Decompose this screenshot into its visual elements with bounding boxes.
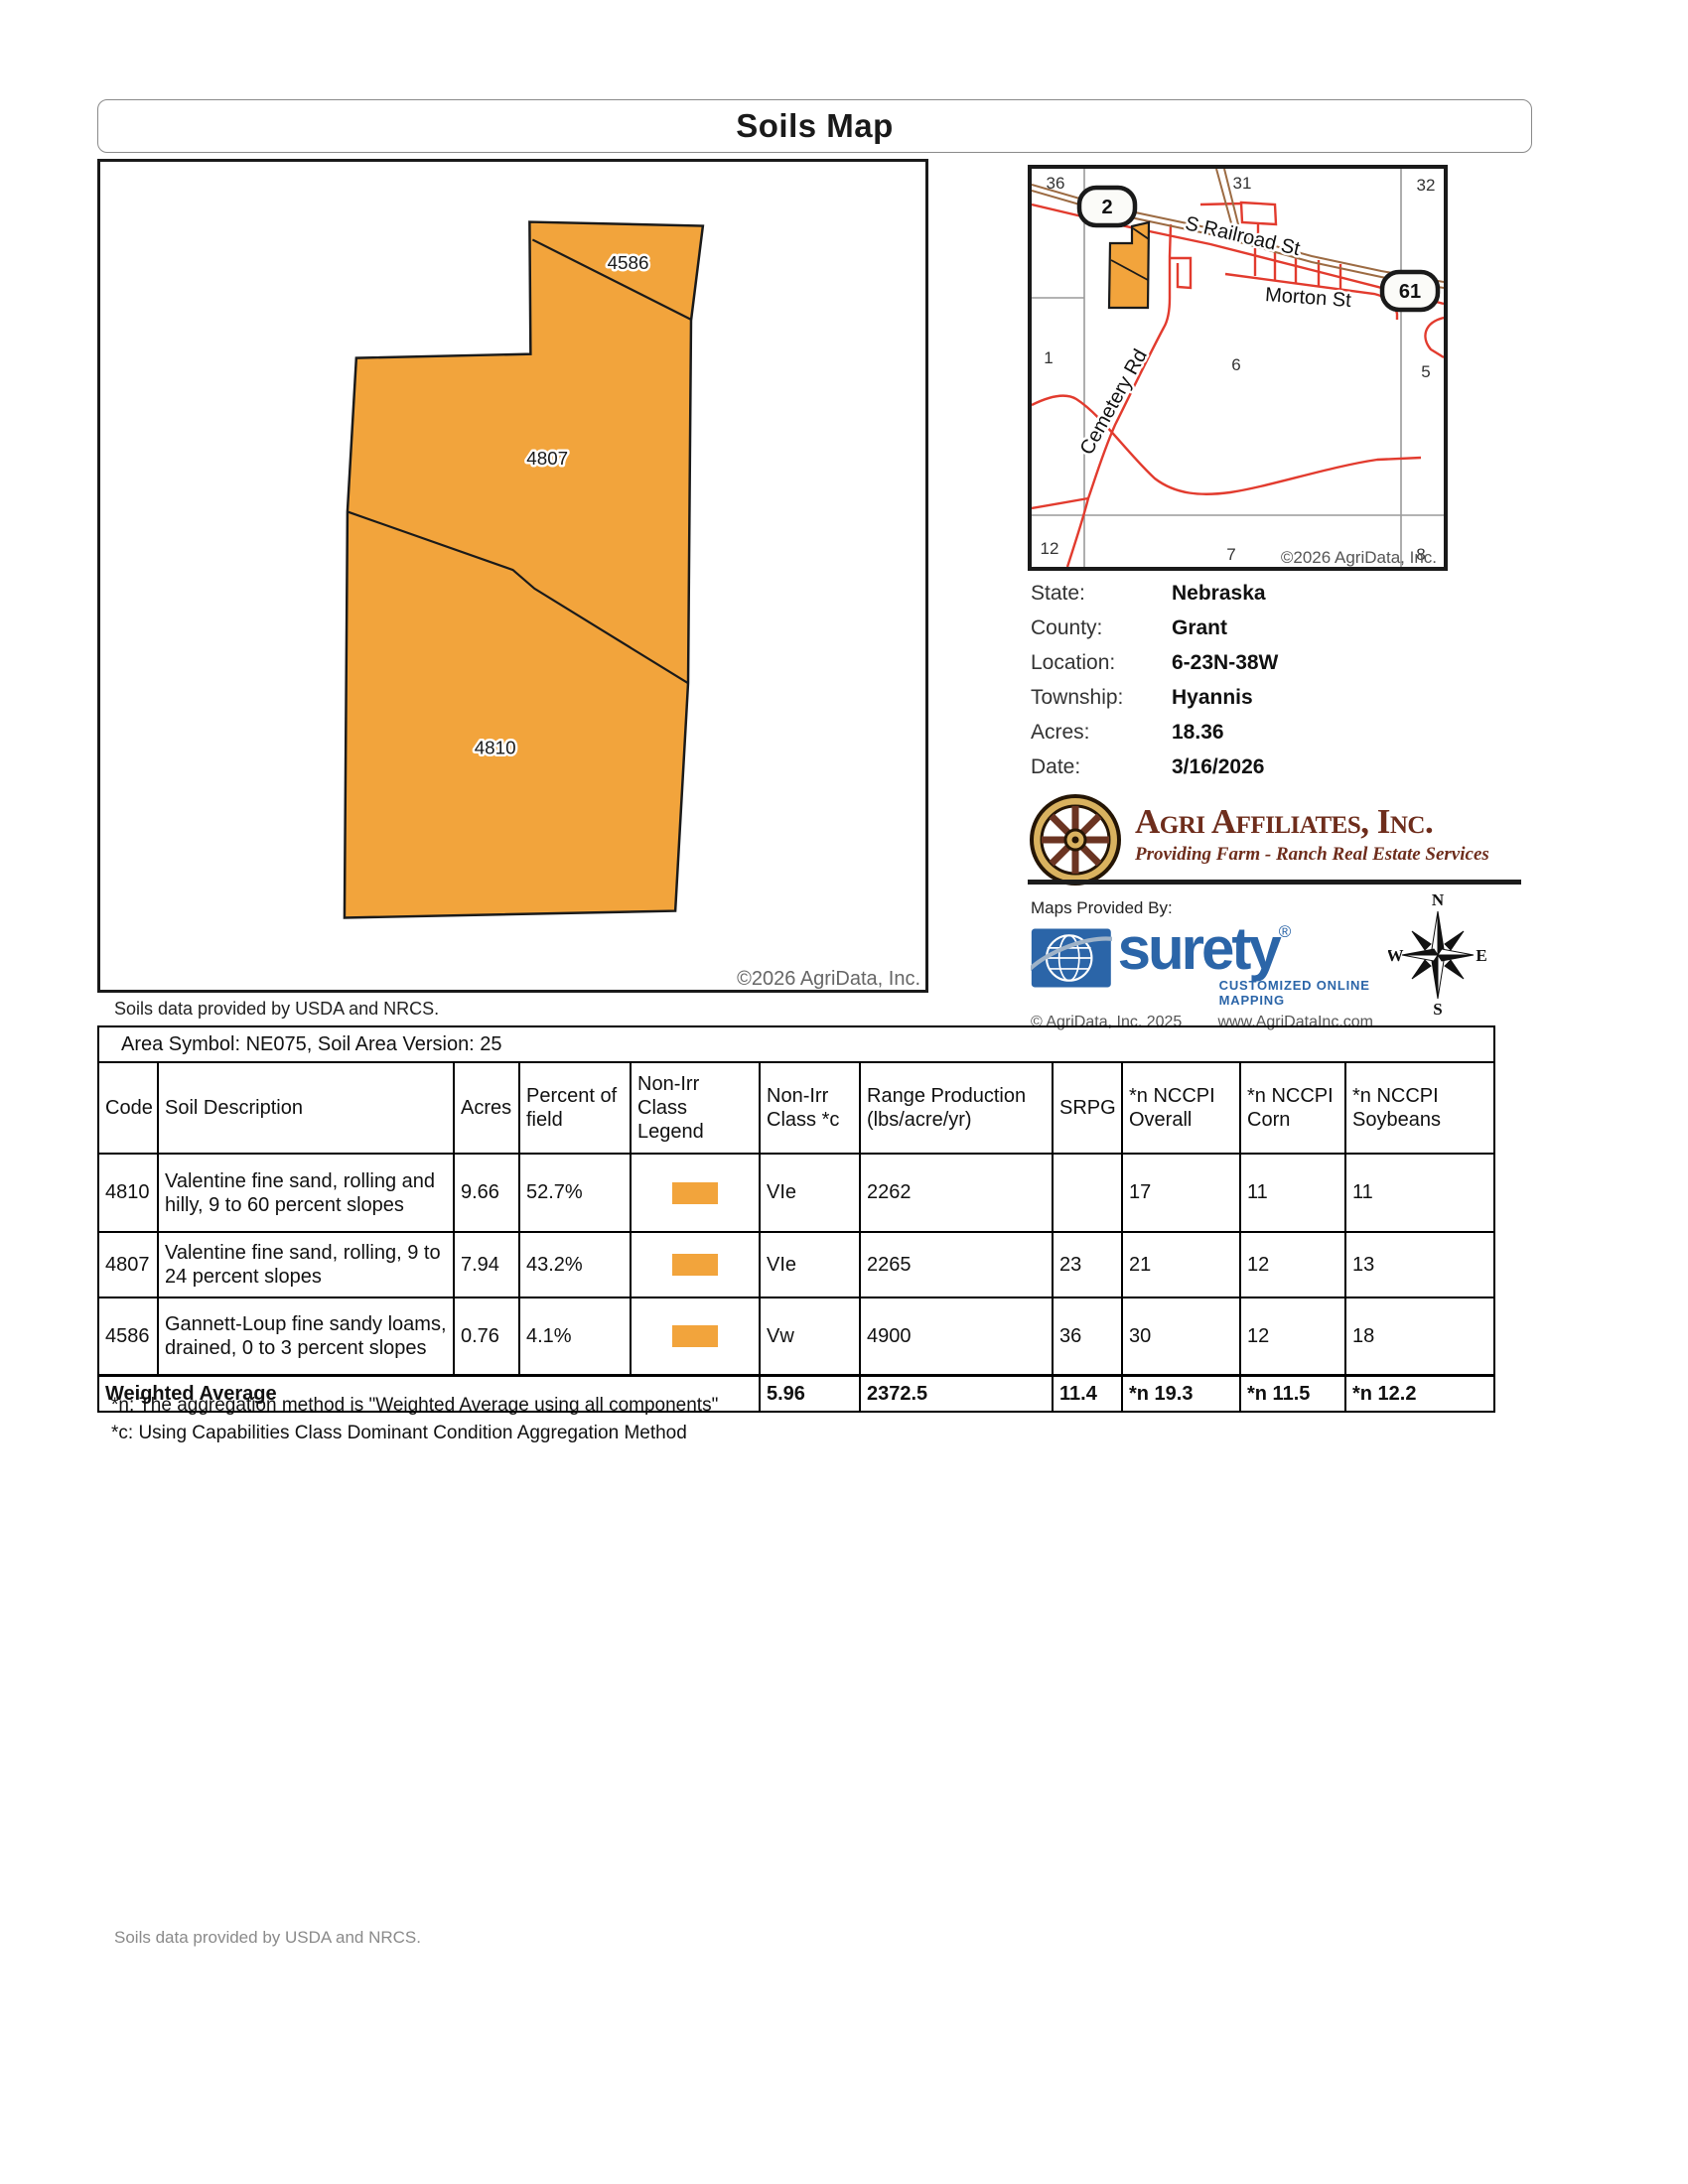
info-value-location: 6-23N-38W — [1172, 650, 1278, 676]
info-value-state: Nebraska — [1172, 581, 1266, 607]
cell-class: Vw — [760, 1297, 860, 1376]
cell-code: 4586 — [98, 1297, 158, 1376]
surety-subtitle: CUSTOMIZED ONLINE MAPPING — [1219, 978, 1388, 1008]
cell-overall: 21 — [1122, 1232, 1240, 1297]
agri-affiliates-logo: Agri Affiliates, Inc. Providing Farm - R… — [1028, 792, 1521, 888]
soils-source-note-bottom: Soils data provided by USDA and NRCS. — [114, 1928, 421, 1948]
cell-acres: 0.76 — [454, 1297, 519, 1376]
svg-text:36: 36 — [1047, 174, 1065, 193]
table-row: 4586 Gannett-Loup fine sandy loams, drai… — [98, 1297, 1494, 1376]
locator-parcel — [1109, 222, 1149, 308]
cell-class: VIe — [760, 1232, 860, 1297]
cell-soybeans: 13 — [1345, 1232, 1494, 1297]
locator-map-svg: 2 61 36 31 32 1 6 5 12 7 8 S Railroad St — [1032, 169, 1444, 567]
logo-divider-rule — [1028, 880, 1521, 885]
soil-map-svg: 4586 4807 4810 — [100, 162, 925, 990]
col-header-legend: Non-Irr Class Legend — [631, 1062, 760, 1154]
cell-percent: 52.7% — [519, 1154, 631, 1232]
cell-corn: 11 — [1240, 1154, 1345, 1232]
cell-soybeans: 11 — [1345, 1154, 1494, 1232]
locator-copyright: ©2026 AgriData, Inc. — [1281, 548, 1437, 567]
cell-acres: 9.66 — [454, 1154, 519, 1232]
wagon-wheel-icon — [1028, 792, 1123, 887]
svg-text:E: E — [1476, 946, 1486, 965]
registered-mark: ® — [1279, 922, 1292, 941]
cell-srpg: 36 — [1053, 1297, 1122, 1376]
weighted-range: 2372.5 — [860, 1376, 1053, 1413]
cell-soybeans: 18 — [1345, 1297, 1494, 1376]
col-header-acres: Acres — [454, 1062, 519, 1154]
info-label: State: — [1031, 581, 1172, 607]
col-header-soybeans: *n NCCPI Soybeans — [1345, 1062, 1494, 1154]
col-header-range: Range Production (lbs/acre/yr) — [860, 1062, 1053, 1154]
footnotes: *n: The aggregation method is "Weighted … — [111, 1392, 718, 1447]
soils-source-note-top: Soils data provided by USDA and NRCS. — [114, 999, 439, 1020]
highway-shield-61: 61 — [1382, 272, 1438, 310]
parcel-info-block: State:Nebraska County:Grant Location:6-2… — [1031, 581, 1448, 789]
col-header-code: Code — [98, 1062, 158, 1154]
cell-description: Gannett-Loup fine sandy loams, drained, … — [158, 1297, 454, 1376]
svg-text:6: 6 — [1231, 355, 1240, 374]
cell-srpg — [1053, 1154, 1122, 1232]
soil-label-4810: 4810 — [475, 738, 516, 758]
roads — [1032, 203, 1444, 567]
compass-rose-icon: N S W E — [1388, 891, 1487, 1022]
area-symbol-header: Area Symbol: NE075, Soil Area Version: 2… — [98, 1026, 1494, 1062]
surety-wordmark: surety — [1118, 915, 1279, 982]
info-value-acres: 18.36 — [1172, 720, 1224, 746]
cell-range: 4900 — [860, 1297, 1053, 1376]
weighted-corn: *n 11.5 — [1240, 1376, 1345, 1413]
svg-text:7: 7 — [1226, 545, 1235, 564]
weighted-soybeans: *n 12.2 — [1345, 1376, 1494, 1413]
legend-swatch — [672, 1254, 718, 1276]
cell-percent: 43.2% — [519, 1232, 631, 1297]
cell-description: Valentine fine sand, rolling, 9 to 24 pe… — [158, 1232, 454, 1297]
legend-swatch — [672, 1325, 718, 1347]
weighted-srpg: 11.4 — [1053, 1376, 1122, 1413]
agri-affiliates-name: Agri Affiliates, Inc. — [1135, 804, 1521, 840]
agri-affiliates-tagline: Providing Farm - Ranch Real Estate Servi… — [1135, 844, 1521, 866]
svg-text:Morton St: Morton St — [1264, 284, 1351, 312]
footnote-c: *c: Using Capabilities Class Dominant Co… — [111, 1420, 718, 1447]
col-header-overall: *n NCCPI Overall — [1122, 1062, 1240, 1154]
soil-label-4807: 4807 — [526, 448, 568, 469]
info-value-date: 3/16/2026 — [1172, 754, 1264, 780]
info-label: County: — [1031, 615, 1172, 641]
cell-code: 4807 — [98, 1232, 158, 1297]
info-label: Date: — [1031, 754, 1172, 780]
cell-range: 2265 — [860, 1232, 1053, 1297]
page-title: Soils Map — [736, 107, 894, 145]
svg-text:5: 5 — [1421, 362, 1430, 381]
soils-map-report-page: Soils Map 4586 4807 4810 ©2026 AgriData,… — [0, 0, 1688, 2184]
cell-description: Valentine fine sand, rolling and hilly, … — [158, 1154, 454, 1232]
surety-globe-icon — [1031, 922, 1112, 994]
weighted-class: 5.96 — [760, 1376, 860, 1413]
svg-text:31: 31 — [1233, 174, 1252, 193]
map-copyright: ©2026 AgriData, Inc. — [737, 968, 920, 991]
cell-legend — [631, 1154, 760, 1232]
cell-acres: 7.94 — [454, 1232, 519, 1297]
col-header-srpg: SRPG — [1053, 1062, 1122, 1154]
svg-text:12: 12 — [1041, 539, 1059, 558]
soils-table: Area Symbol: NE075, Soil Area Version: 2… — [97, 1025, 1495, 1413]
cell-legend — [631, 1232, 760, 1297]
svg-text:61: 61 — [1399, 281, 1421, 303]
info-label: Location: — [1031, 650, 1172, 676]
svg-text:N: N — [1432, 891, 1445, 909]
svg-text:Cemetery Rd: Cemetery Rd — [1076, 345, 1152, 459]
cell-overall: 17 — [1122, 1154, 1240, 1232]
cell-class: VIe — [760, 1154, 860, 1232]
svg-text:W: W — [1388, 946, 1404, 965]
table-row: 4807 Valentine fine sand, rolling, 9 to … — [98, 1232, 1494, 1297]
cell-percent: 4.1% — [519, 1297, 631, 1376]
svg-text:S: S — [1433, 1000, 1442, 1017]
cell-legend — [631, 1297, 760, 1376]
soil-label-4586: 4586 — [608, 252, 649, 273]
footnote-n: *n: The aggregation method is "Weighted … — [111, 1392, 718, 1420]
main-soil-map: 4586 4807 4810 ©2026 AgriData, Inc. — [97, 159, 928, 993]
col-header-corn: *n NCCPI Corn — [1240, 1062, 1345, 1154]
svg-text:1: 1 — [1044, 348, 1053, 367]
legend-swatch — [672, 1182, 718, 1204]
info-value-county: Grant — [1172, 615, 1227, 641]
weighted-overall: *n 19.3 — [1122, 1376, 1240, 1413]
locator-map: 2 61 36 31 32 1 6 5 12 7 8 S Railroad St — [1028, 165, 1448, 571]
cell-corn: 12 — [1240, 1232, 1345, 1297]
col-header-class: Non-Irr Class *c — [760, 1062, 860, 1154]
svg-text:2: 2 — [1101, 197, 1112, 218]
title-box: Soils Map — [97, 99, 1532, 153]
col-header-description: Soil Description — [158, 1062, 454, 1154]
cell-corn: 12 — [1240, 1297, 1345, 1376]
info-value-township: Hyannis — [1172, 685, 1253, 711]
highway-shield-2: 2 — [1079, 188, 1135, 225]
info-label: Township: — [1031, 685, 1172, 711]
cell-range: 2262 — [860, 1154, 1053, 1232]
col-header-percent: Percent of field — [519, 1062, 631, 1154]
cell-srpg: 23 — [1053, 1232, 1122, 1297]
cell-overall: 30 — [1122, 1297, 1240, 1376]
surety-block: Maps Provided By: surety® CUSTOMIZED ONL… — [1031, 898, 1388, 1031]
info-label: Acres: — [1031, 720, 1172, 746]
field-boundary-polygon — [345, 222, 703, 918]
table-row: 4810 Valentine fine sand, rolling and hi… — [98, 1154, 1494, 1232]
cell-code: 4810 — [98, 1154, 158, 1232]
svg-text:32: 32 — [1417, 176, 1436, 195]
